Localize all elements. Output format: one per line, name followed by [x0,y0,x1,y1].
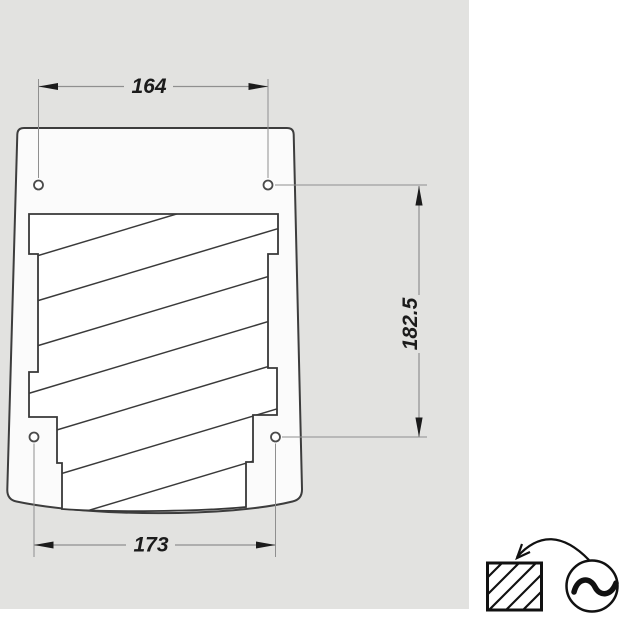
dimension-value-bottom-width: 173 [133,534,168,557]
cutout-fill [29,214,278,511]
mounting-hole-top-right [264,181,273,190]
mounting-hole-bottom-left [30,433,39,442]
mounting-hole-bottom-right [271,433,280,442]
dimension-value-vertical-height: 182.5 [399,297,422,350]
technical-drawing: 164 173 182.5 [0,0,630,630]
dimension-value-top-width: 164 [131,75,166,98]
mounting-hole-top-left [34,181,43,190]
